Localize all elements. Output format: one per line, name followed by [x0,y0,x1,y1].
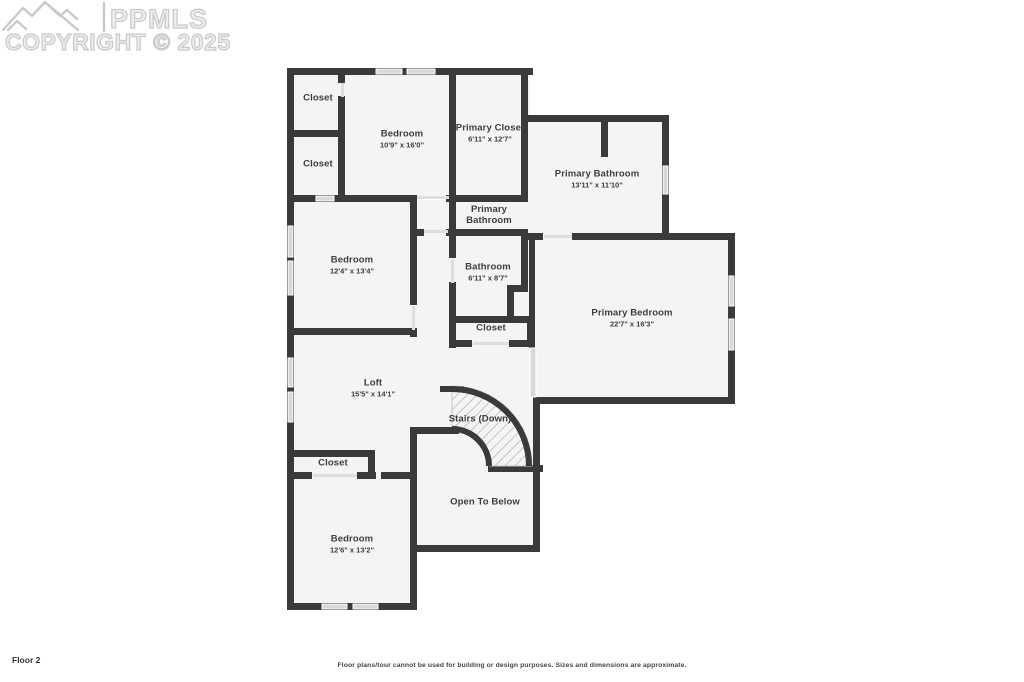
door-opening [313,474,357,477]
wall [410,330,417,337]
window [288,392,293,422]
door-opening [451,259,454,283]
floorplan-drawing [0,0,1024,682]
wall [287,195,417,202]
wall [357,472,376,479]
room-fill [534,238,730,399]
window [288,226,293,257]
wall [521,236,528,292]
wall [529,240,535,348]
window [288,261,293,295]
wall [446,195,528,202]
floorplan-page: PPMLS COPYRIGHT © 2025 [0,0,1024,682]
door-opening [412,306,415,330]
wall [521,233,543,240]
wall [728,233,735,403]
window [663,166,668,194]
wall [287,130,345,137]
window [288,358,293,387]
window [322,604,347,609]
door-opening [341,83,344,97]
wall [449,340,472,347]
wall [446,229,528,236]
window [729,319,734,350]
window [353,604,378,609]
wall [572,233,735,240]
wall [287,603,417,610]
wall [601,115,608,157]
wall [287,68,294,610]
window [376,69,402,74]
wall [449,316,534,323]
wall [410,427,417,610]
wall [287,472,312,479]
door-opening [473,342,509,345]
railing [530,348,536,397]
wall [338,70,345,83]
wall [287,328,417,335]
door-opening [544,235,572,238]
window [316,196,334,201]
door-opening [424,230,448,233]
window [407,69,435,74]
wall [287,450,375,457]
wall [533,397,735,404]
door-opening [417,196,449,199]
disclaimer-text: Floor plans/tour cannot be used for buil… [0,662,1024,669]
window [729,276,734,306]
wall [449,282,456,348]
wall [338,96,345,202]
wall [521,115,668,122]
wall [410,195,417,305]
wall [411,427,459,434]
room-fill [528,120,664,235]
wall [533,403,540,552]
wall [521,68,528,198]
wall [411,545,540,552]
